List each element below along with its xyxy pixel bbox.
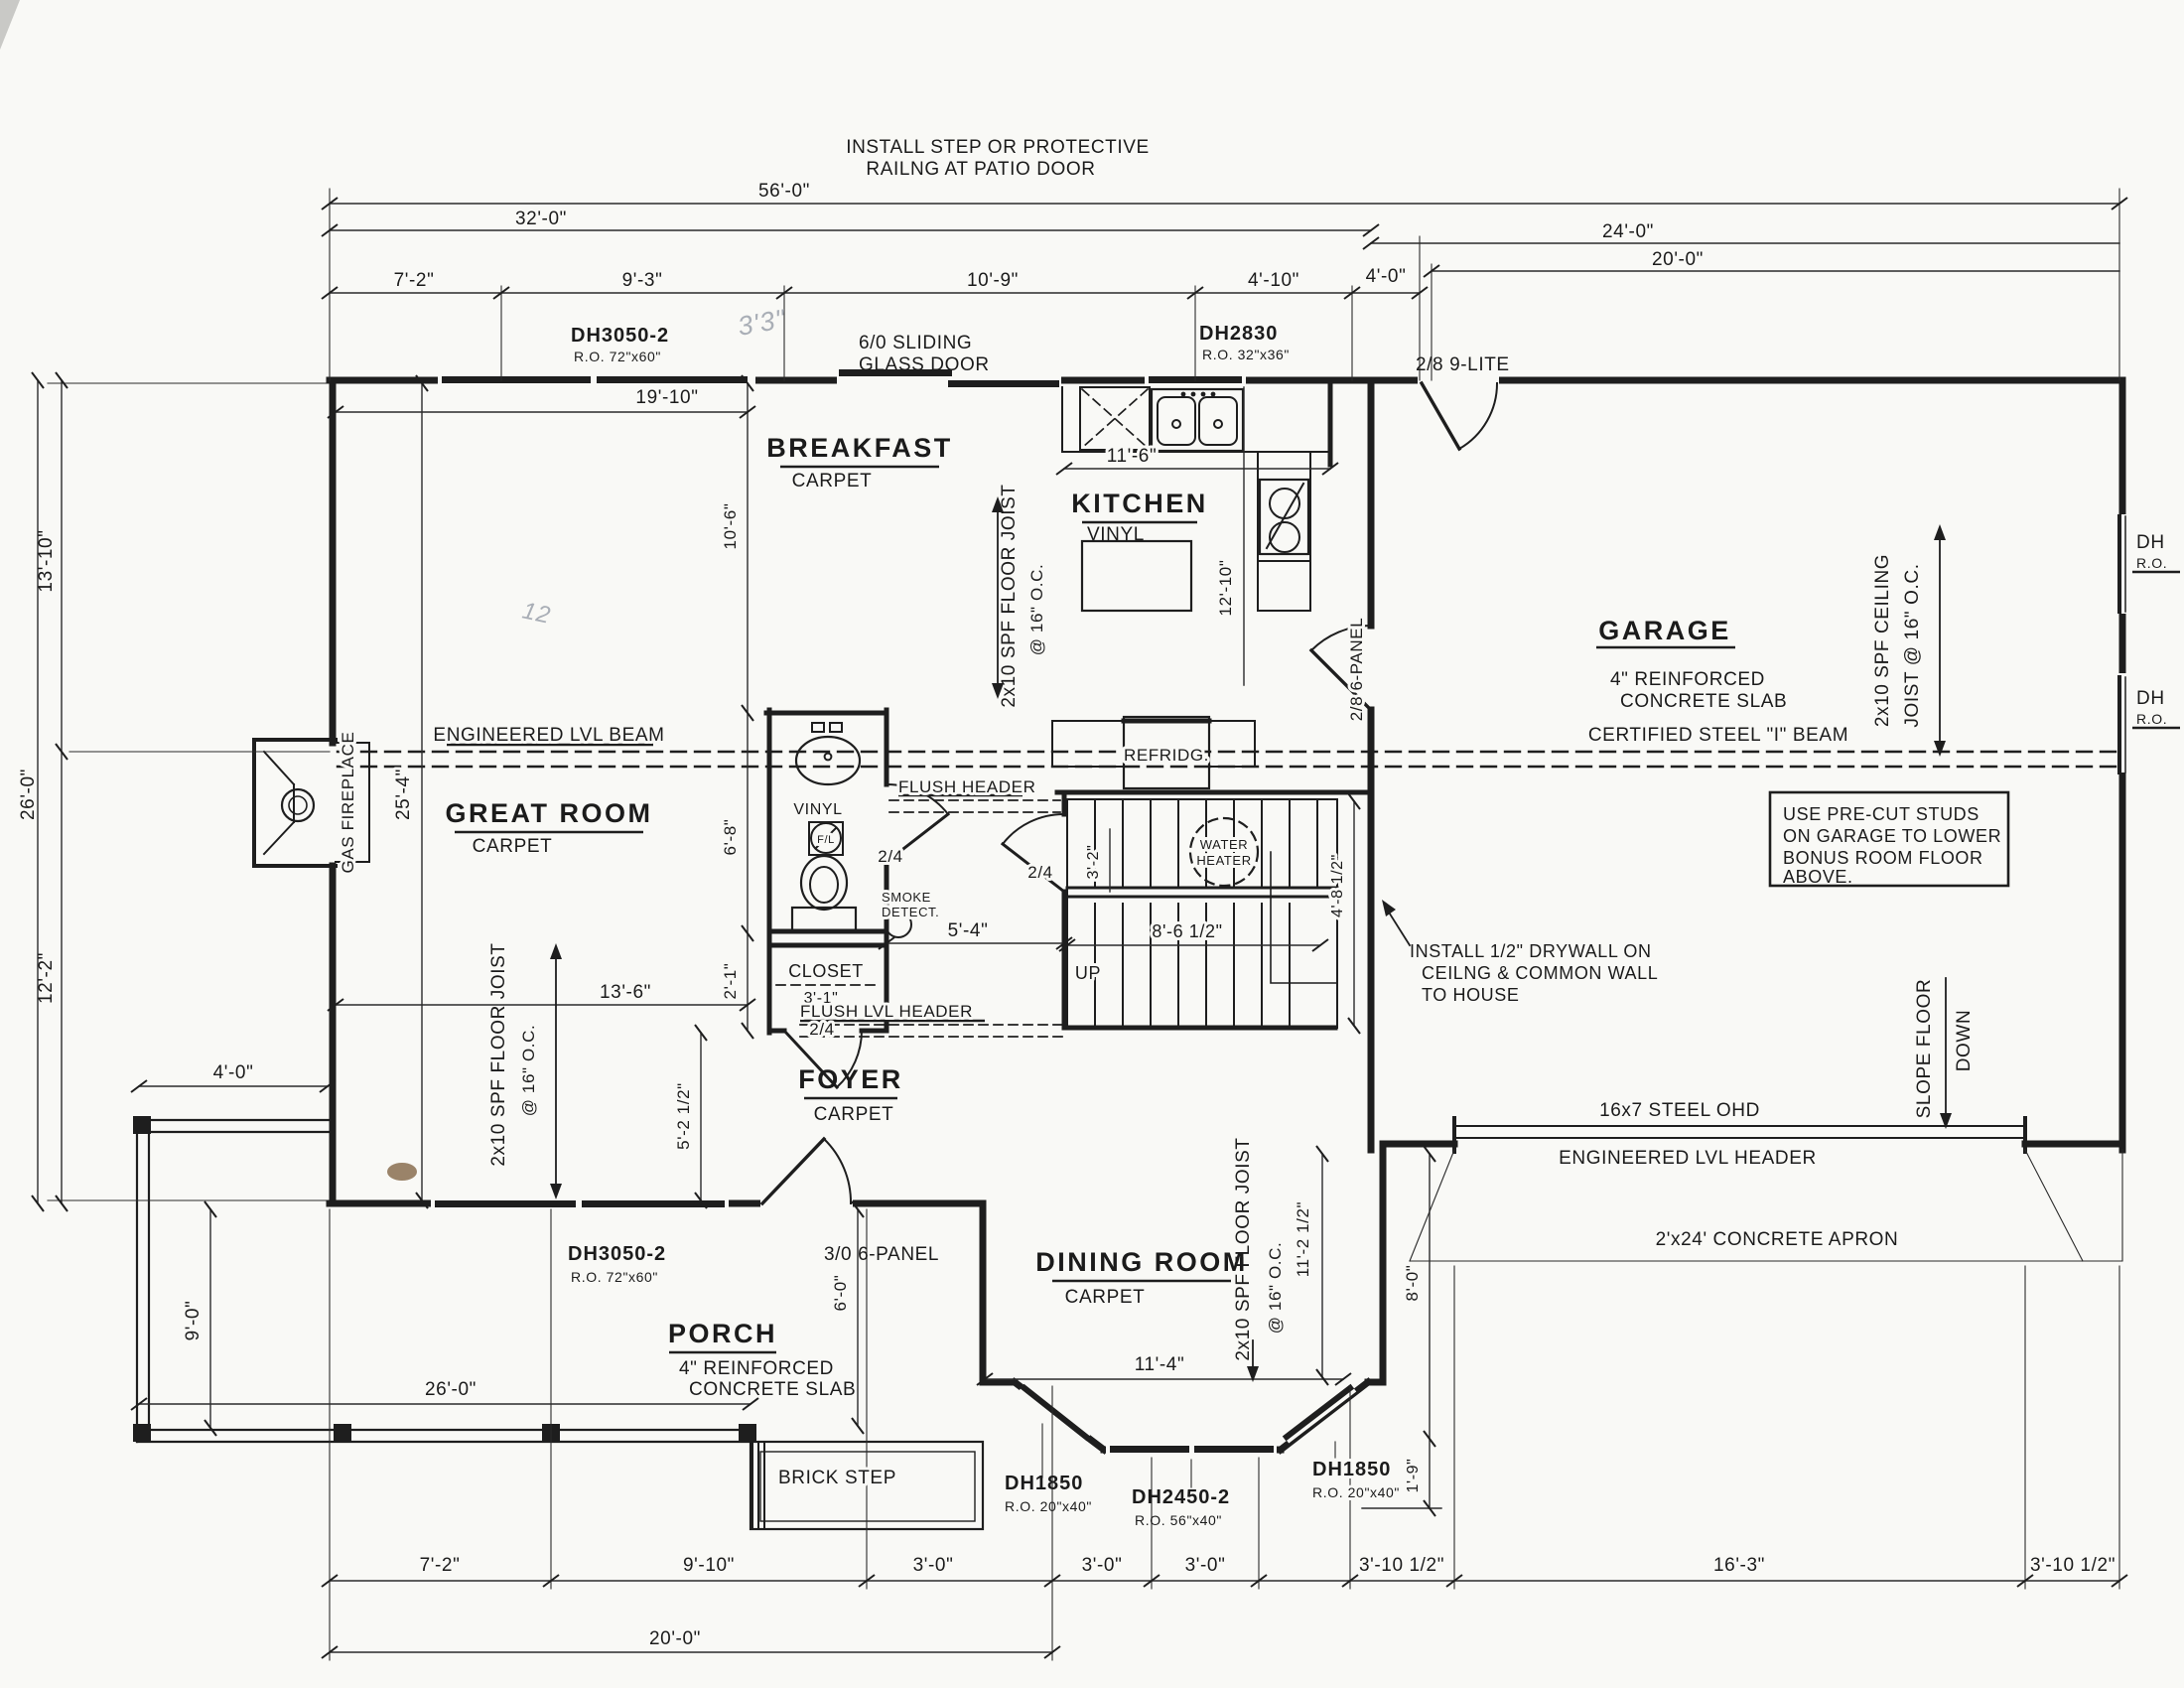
dim-4-0: 4'-0" — [1366, 266, 1407, 287]
flush-header-label: FLUSH HEADER — [898, 777, 1036, 796]
precut-note-line3: BONUS ROOM FLOOR — [1783, 848, 1983, 868]
door-label-9-lite: 2/8 9-LITE — [1416, 354, 1510, 375]
room-floor-great-room: CARPET — [473, 836, 553, 857]
room-label-dining: DINING ROOM — [1035, 1247, 1248, 1277]
brick-step-label: BRICK STEP — [778, 1468, 896, 1488]
drywall-note-line3: TO HOUSE — [1422, 985, 1519, 1005]
dim-32-0: 32'-0" — [515, 209, 567, 229]
dim-12-2-left: 12'-2" — [36, 952, 57, 1004]
door-label-sliding-line1: 6/0 SLIDING — [859, 333, 972, 353]
dim-4-8-half: 4'-8 1/2" — [1329, 854, 1346, 917]
dim-20-0: 20'-0" — [1652, 249, 1704, 270]
dim-7-2: 7'-2" — [394, 270, 435, 291]
dim-bottom-7-2: 7'-2" — [420, 1555, 461, 1576]
dim-bottom-3-0-b: 3'-0" — [1082, 1555, 1123, 1576]
dim-13-6: 13'-6" — [600, 982, 651, 1003]
apron-label: 2'x24' CONCRETE APRON — [1656, 1229, 1899, 1250]
joist-note-kitchen-line2: @ 16" O.C. — [1027, 564, 1046, 656]
room-label-porch: PORCH — [668, 1319, 777, 1348]
room-note-porch-line1: 4" REINFORCED — [679, 1358, 834, 1379]
lvl-header-label: ENGINEERED LVL HEADER — [1559, 1148, 1817, 1169]
dim-8-6-half: 8'-6 1/2" — [1152, 921, 1222, 941]
floor-drain-label: F/L — [817, 834, 835, 846]
door-label-front: 3/0 6-PANEL — [824, 1244, 939, 1265]
window-ro-cut-right-2: R.O. — [2136, 711, 2167, 727]
window-ro-dh3050-bottom: R.O. 72"x60" — [571, 1269, 658, 1285]
door-label-6-panel: 2/8 6-PANEL — [1347, 618, 1366, 722]
scan-smudge — [387, 1163, 417, 1181]
room-label-closet: CLOSET — [788, 961, 864, 981]
dim-5-2-half: 5'-2 1/2" — [674, 1082, 693, 1150]
dim-6-0: 6'-0" — [831, 1275, 850, 1312]
dim-10-6: 10'-6" — [721, 503, 740, 550]
dim-1-9: 1'-9" — [1405, 1459, 1422, 1493]
dim-6-8: 6'-8" — [721, 819, 740, 856]
room-label-breakfast: BREAKFAST — [766, 433, 953, 463]
pencil-note-3-3: 3'3" — [736, 304, 789, 342]
pencil-note-12: 12 — [520, 597, 554, 629]
water-heater-line2: HEATER — [1196, 853, 1251, 868]
window-label-dh2830: DH2830 — [1199, 323, 1278, 345]
water-heater-symbol — [1190, 818, 1258, 886]
floor-plan-scan: INSTALL STEP OR PROTECTIVE RAILNG AT PAT… — [0, 0, 2184, 1688]
joist-note-greatroom-line1: 2x10 SPF FLOOR JOIST — [488, 942, 509, 1166]
dim-bottom-3-10-half-a: 3'-10 1/2" — [1359, 1555, 1444, 1576]
slope-down-label: DOWN — [1954, 1010, 1975, 1072]
flush-lvl-header-label: FLUSH LVL HEADER — [800, 1002, 973, 1021]
window-label-dh3050-top: DH3050-2 — [571, 325, 669, 347]
dim-13-10-left: 13'-10" — [36, 529, 57, 592]
floor-plan-drawing: INSTALL STEP OR PROTECTIVE RAILNG AT PAT… — [0, 0, 2184, 1688]
beam-lines — [338, 752, 2116, 767]
window-label-dh3050-bottom: DH3050-2 — [568, 1243, 666, 1265]
smoke-detector-line2: DETECT. — [882, 905, 939, 919]
window-ro-cut-right-1: R.O. — [2136, 555, 2167, 571]
window-ro-dh3050-top: R.O. 72"x60" — [574, 349, 661, 364]
smoke-detector-line1: SMOKE — [882, 890, 931, 905]
dim-11-6: 11'-6" — [1107, 446, 1158, 467]
joist-note-kitchen-line1: 2x10 SPF FLOOR JOIST — [999, 484, 1020, 707]
patio-note-line1: INSTALL STEP OR PROTECTIVE — [846, 137, 1150, 158]
joist-note-greatroom-line2: @ 16" O.C. — [519, 1025, 538, 1117]
dim-9-0-porch: 9'-0" — [183, 1301, 204, 1341]
room-label-garage: GARAGE — [1598, 616, 1731, 645]
joist-note-garage-line1: 2x10 SPF CEILING — [1872, 554, 1893, 727]
window-label-dh1850-right: DH1850 — [1312, 1459, 1391, 1480]
text-labels: INSTALL STEP OR PROTECTIVE RAILNG AT PAT… — [18, 137, 2167, 1649]
window-ro-dh2830: R.O. 32"x36" — [1202, 347, 1290, 362]
beam-label-lvl: ENGINEERED LVL BEAM — [433, 725, 664, 746]
dim-3-2: 3'-2" — [1085, 845, 1102, 880]
dim-12-10: 12'-10" — [1216, 560, 1235, 617]
precut-note-line4: ABOVE. — [1783, 867, 1853, 887]
drywall-note-line2: CEILNG & COMMON WALL — [1422, 963, 1658, 983]
precut-note-line2: ON GARAGE TO LOWER — [1783, 826, 2001, 846]
dim-11-4: 11'-4" — [1135, 1354, 1185, 1375]
kitchen-fixtures — [1052, 387, 1330, 788]
dim-bottom-16-3: 16'-3" — [1713, 1555, 1765, 1576]
window-ro-dh1850-right: R.O. 20"x40" — [1312, 1484, 1400, 1500]
dim-4-10: 4'-10" — [1248, 270, 1299, 291]
dim-24-0: 24'-0" — [1602, 221, 1654, 242]
door-label-sliding-line2: GLASS DOOR — [859, 354, 990, 375]
window-label-cut-right-2: DH — [2136, 688, 2165, 709]
joist-note-garage-line2: JOIST @ 16" O.C. — [1902, 563, 1923, 727]
room-floor-foyer: CARPET — [814, 1104, 894, 1125]
room-floor-kitchen: VINYL — [1087, 524, 1145, 545]
dim-9-3: 9'-3" — [622, 270, 663, 291]
dim-26-0-porch: 26'-0" — [425, 1379, 477, 1400]
room-floor-dining: CARPET — [1065, 1287, 1146, 1308]
room-label-kitchen: KITCHEN — [1071, 489, 1208, 518]
precut-note-line1: USE PRE-CUT STUDS — [1783, 804, 1979, 824]
room-note-garage-line1: 4" REINFORCED — [1610, 669, 1765, 690]
room-note-porch-line2: CONCRETE SLAB — [689, 1379, 856, 1400]
dim-bottom-20-0: 20'-0" — [649, 1628, 701, 1649]
fridge-label: REFRIDG. — [1124, 746, 1209, 765]
dim-bottom-3-0-a: 3'-0" — [913, 1555, 954, 1576]
door-label-2-4-bath: 2/4 — [878, 847, 902, 866]
patio-note-line2: RAILNG AT PATIO DOOR — [866, 159, 1095, 180]
room-floor-bath: VINYL — [793, 801, 842, 818]
dim-25-4: 25'-4" — [393, 769, 414, 820]
slope-floor-label: SLOPE FLOOR — [1914, 979, 1935, 1119]
dim-8-0: 8'-0" — [1403, 1265, 1422, 1302]
room-note-garage-line2: CONCRETE SLAB — [1620, 691, 1787, 712]
drywall-note-line1: INSTALL 1/2" DRYWALL ON — [1410, 941, 1652, 961]
window-label-cut-right-1: DH — [2136, 532, 2165, 553]
water-heater-line1: WATER — [1200, 837, 1249, 852]
room-label-foyer: FOYER — [798, 1064, 903, 1094]
dim-bottom-3-0-c: 3'-0" — [1185, 1555, 1226, 1576]
window-ro-dh2450: R.O. 56"x40" — [1135, 1512, 1222, 1528]
beam-label-steel: CERTIFIED STEEL "I" BEAM — [1588, 725, 1848, 746]
dim-5-4: 5'-4" — [948, 920, 989, 941]
dim-bottom-3-10-half-b: 3'-10 1/2" — [2030, 1555, 2116, 1576]
door-label-2-4-closet: 2/4 — [809, 1020, 834, 1039]
fireplace-label: GAS FIREPLACE — [339, 732, 357, 874]
dim-2-1: 2'-1" — [721, 963, 740, 1000]
joist-note-dining-line2: @ 16" O.C. — [1266, 1242, 1285, 1335]
stairs-up-label: UP — [1075, 963, 1101, 983]
window-ro-dh1850-left: R.O. 20"x40" — [1005, 1498, 1092, 1514]
dim-19-10: 19'-10" — [635, 387, 698, 408]
dim-26-0-left: 26'-0" — [18, 769, 39, 820]
stairs — [1067, 799, 1337, 1028]
room-floor-breakfast: CARPET — [792, 471, 873, 492]
room-label-great-room: GREAT ROOM — [446, 798, 653, 828]
scan-corner-artifact — [0, 0, 20, 50]
window-label-dh1850-left: DH1850 — [1005, 1473, 1083, 1494]
dim-bottom-9-10: 9'-10" — [683, 1555, 735, 1576]
ohd-label: 16x7 STEEL OHD — [1599, 1100, 1760, 1121]
dim-10-9: 10'-9" — [967, 270, 1019, 291]
dim-4-0-porch: 4'-0" — [213, 1062, 254, 1083]
dim-56-0: 56'-0" — [758, 181, 810, 202]
window-label-dh2450: DH2450-2 — [1132, 1486, 1230, 1508]
dim-11-2-half: 11'-2 1/2" — [1294, 1201, 1312, 1277]
exterior-walls — [330, 380, 2122, 1450]
door-label-2-4-hall: 2/4 — [1027, 863, 1052, 882]
